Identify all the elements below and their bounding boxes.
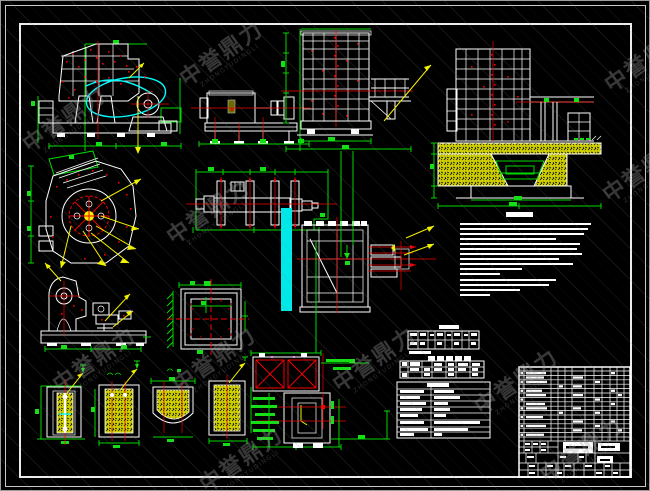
note-line: [460, 243, 580, 245]
note-line: [460, 223, 591, 225]
note-line: [460, 263, 573, 265]
note-line: [460, 273, 500, 275]
title-block: [516, 364, 634, 480]
small-table-3: [394, 378, 494, 440]
note-line: [460, 284, 549, 286]
note-line: [460, 238, 556, 240]
note-line: [460, 279, 556, 281]
note-line: [460, 248, 577, 250]
technical-notes-block: [456, 209, 598, 307]
note-line: [460, 268, 522, 270]
cad-drawing-sheet: 中誉鼎力ZHONGYUDINGLI 中誉鼎力ZHONGYUDINGLI 中誉鼎力…: [0, 0, 650, 491]
note-line: [460, 233, 584, 235]
note-line: [460, 289, 520, 291]
note-line: [460, 258, 559, 260]
note-line: [460, 294, 490, 296]
notes-title-bar: [506, 212, 533, 217]
note-line: [460, 253, 582, 255]
note-line: [460, 228, 588, 230]
